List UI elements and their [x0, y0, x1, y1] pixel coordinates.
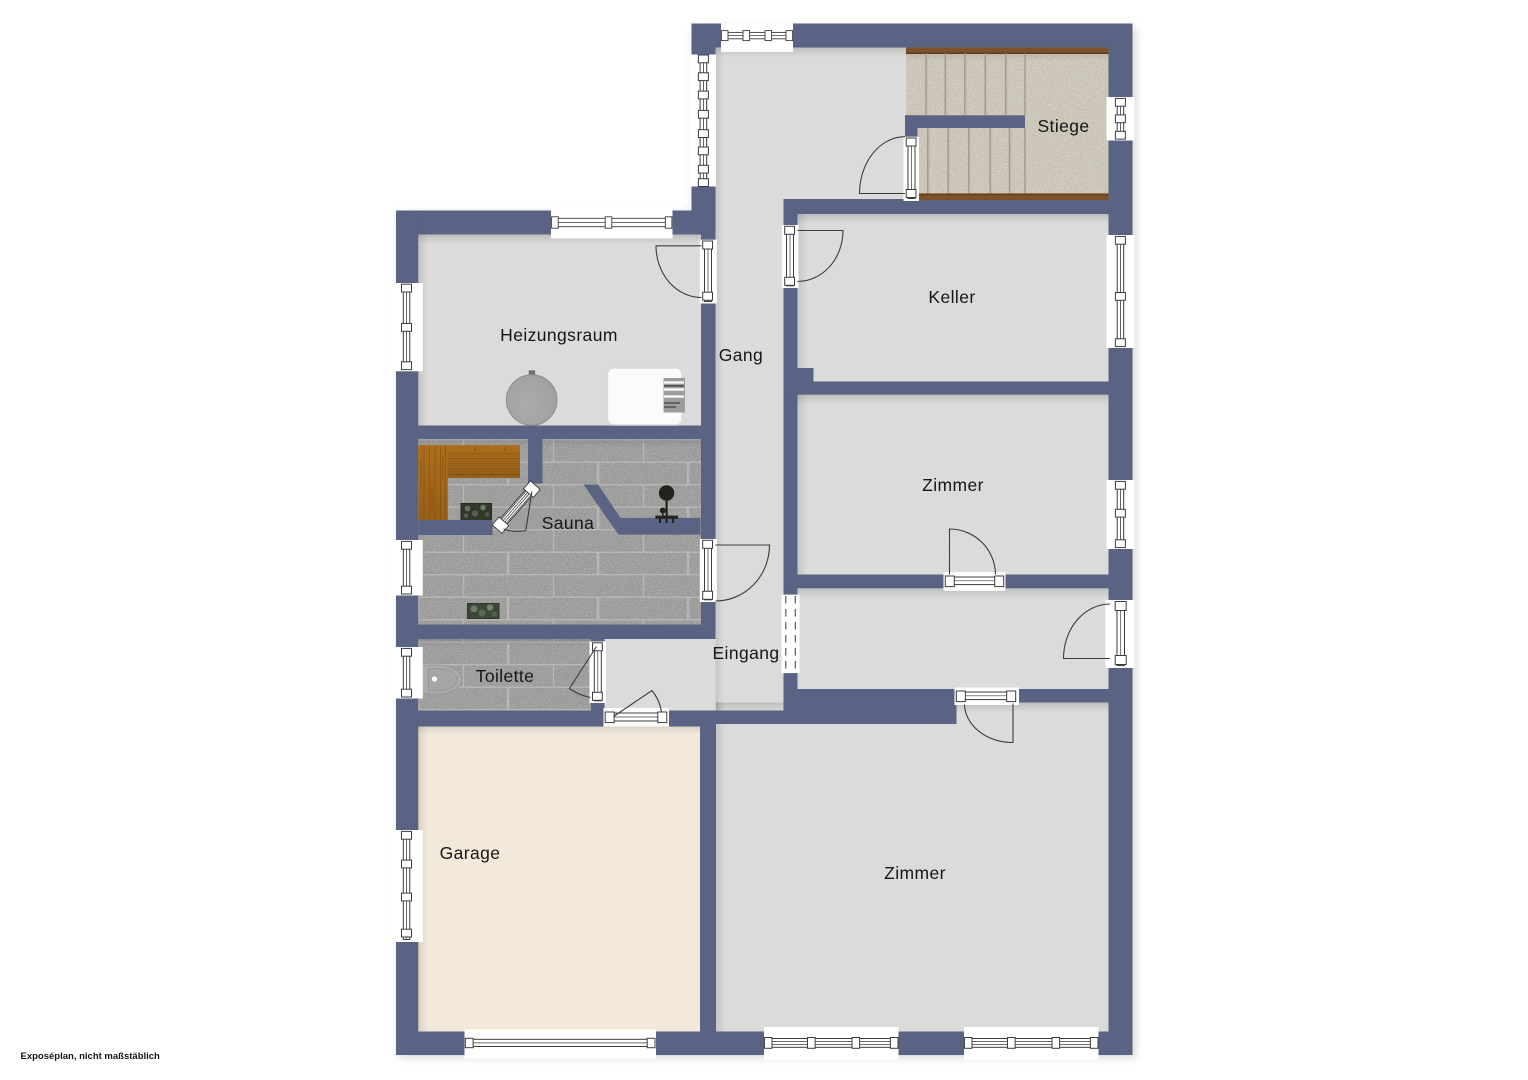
svg-text:Heizungsraum: Heizungsraum [500, 325, 618, 345]
svg-text:Zimmer: Zimmer [884, 863, 946, 883]
svg-text:Sauna: Sauna [542, 513, 595, 533]
svg-text:Keller: Keller [928, 287, 975, 307]
svg-text:Toilette: Toilette [476, 666, 535, 686]
svg-text:Stiege: Stiege [1037, 116, 1089, 136]
svg-text:Gang: Gang [719, 345, 763, 365]
svg-text:Eingang: Eingang [712, 643, 779, 663]
svg-text:Exposéplan, nicht maßstäblich: Exposéplan, nicht maßstäblich [21, 1051, 161, 1062]
svg-text:Zimmer: Zimmer [922, 475, 984, 495]
svg-text:Garage: Garage [440, 843, 501, 863]
